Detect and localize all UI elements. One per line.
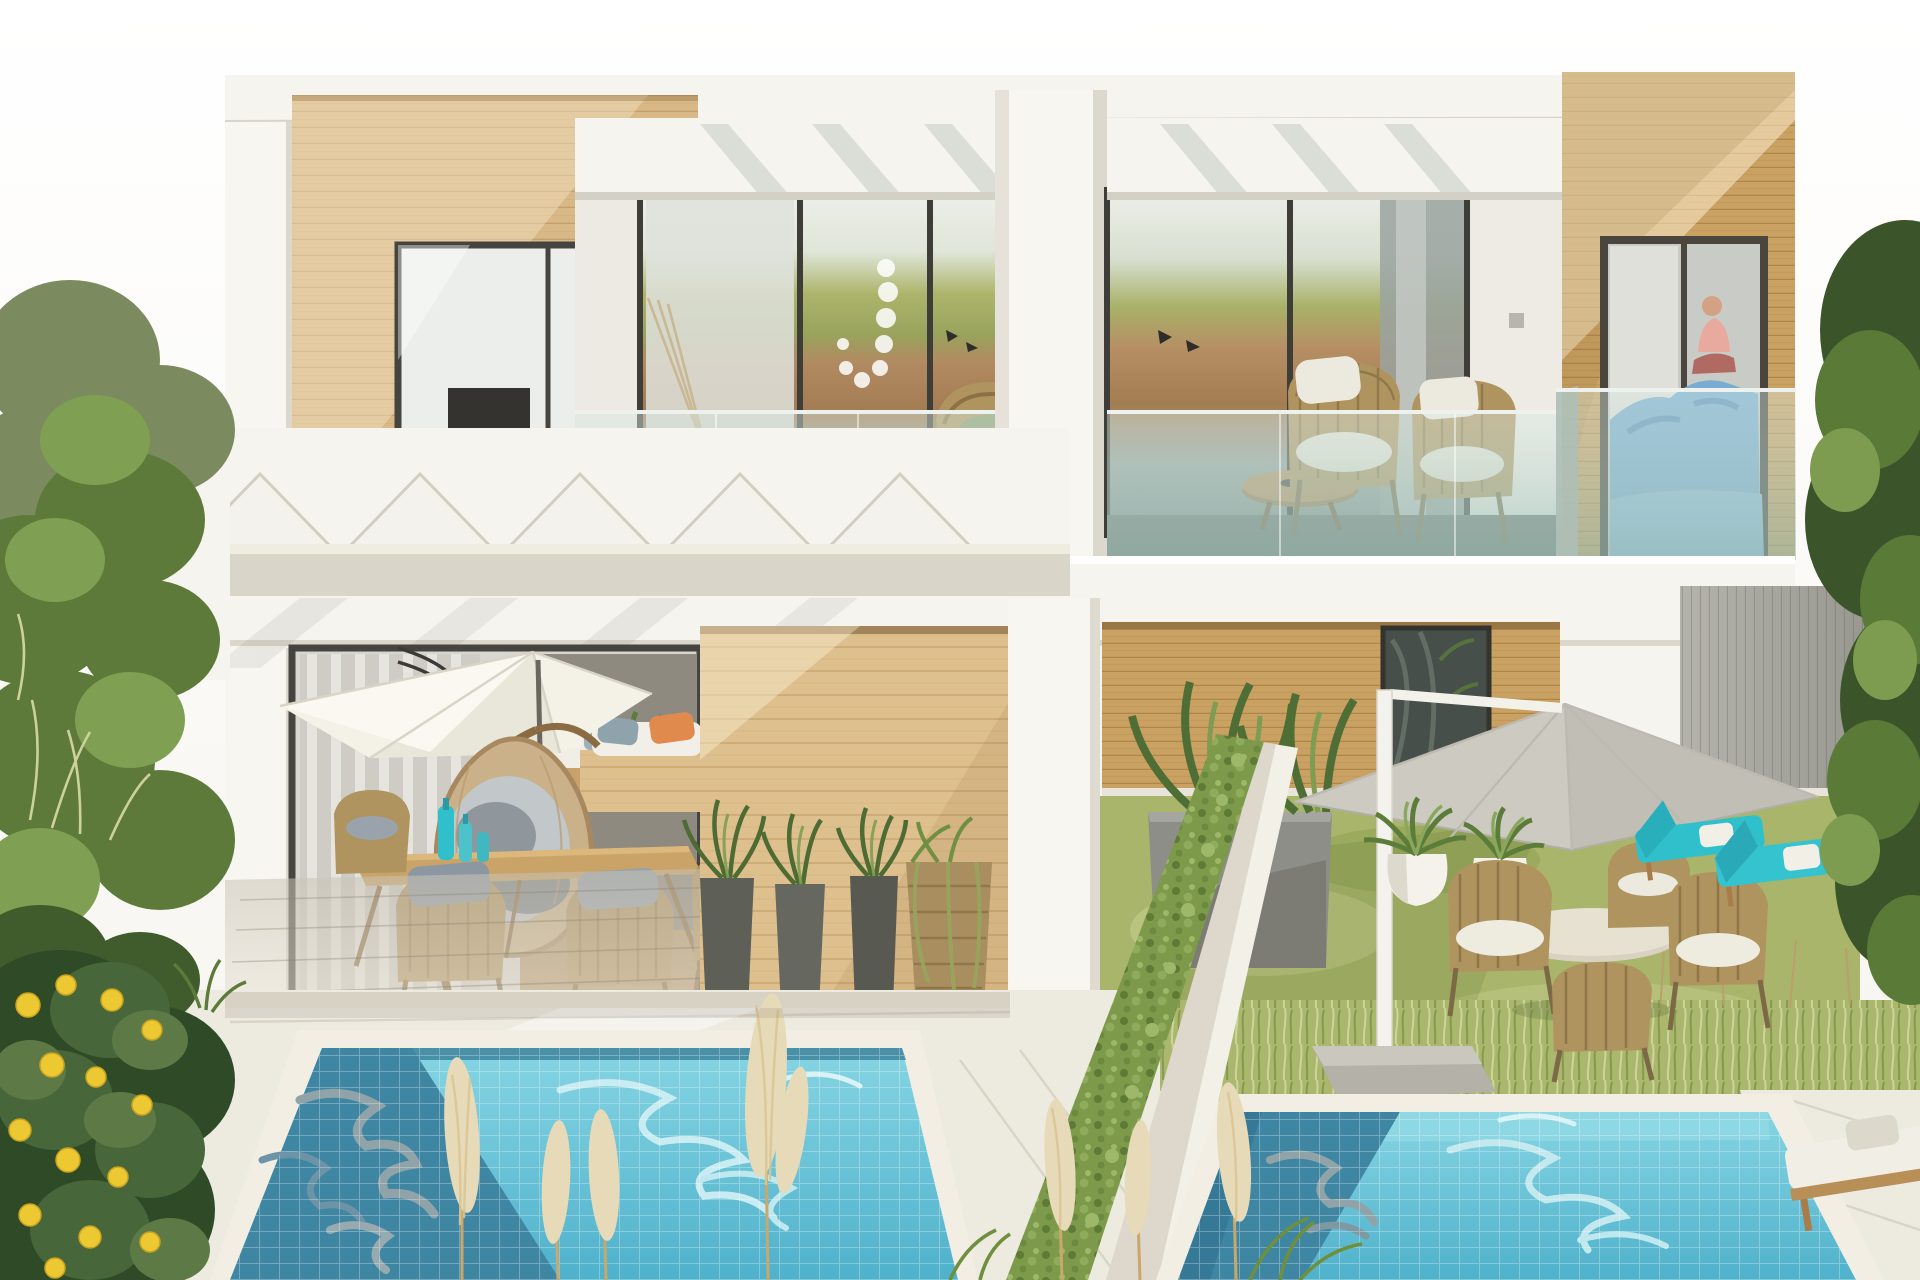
villa-scene [0,0,1920,1280]
facade-ground-shadow [225,1008,1010,1018]
right-balcony-pergola [1107,118,1562,200]
right-balcony [1107,118,1630,560]
right-wood-volume [1556,72,1796,640]
center-wood-wall [684,626,1010,1012]
dining-chair-back-left [334,790,410,874]
ground-front-pier [1008,598,1100,1012]
rendered-photo [0,0,1920,1280]
right-balcony-railing [1107,410,1630,560]
right-wood-railing [1556,386,1796,560]
